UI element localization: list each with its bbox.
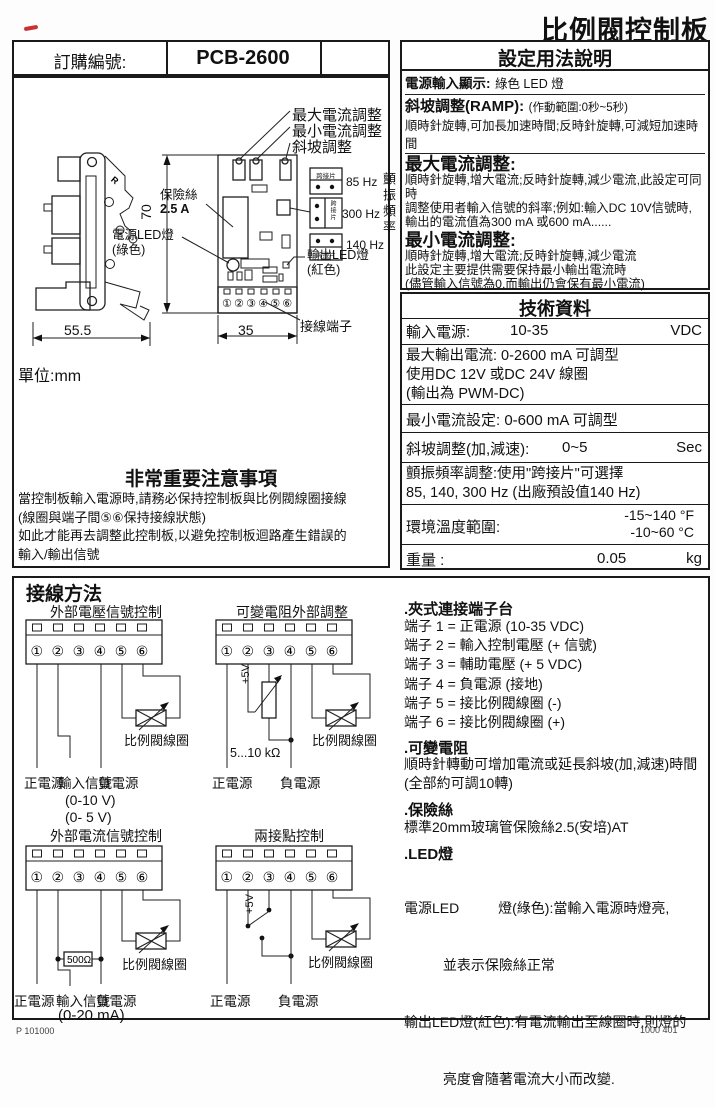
adjust-ramp-label: 斜坡調整 bbox=[292, 136, 352, 157]
power-display-row: 電源輸入顯示: 綠色 LED 燈 bbox=[405, 72, 705, 95]
max-current-title: 最大電流調整: bbox=[405, 154, 705, 174]
tech-title: 技術資料 bbox=[402, 294, 708, 318]
footer-code-right: 1000 401 bbox=[640, 1025, 678, 1035]
dim-55-label: 55.5 bbox=[64, 322, 91, 338]
min-current-line: 此設定主要提供需要保持最小輸出電流時 bbox=[405, 264, 705, 278]
tech-label: 環境溫度範圍: bbox=[406, 516, 500, 537]
dim-35-label: 35 bbox=[238, 322, 254, 338]
coil-label: 比例閥線圈 bbox=[308, 952, 373, 971]
neg-power-label: 負電源 bbox=[98, 772, 139, 792]
tech-line: 使用DC 12V 或DC 24V 線圈 bbox=[406, 366, 704, 385]
wiring-diagram-two-contact: 兩接點控制 ①②③④⑤⑥ +5V 比例閥線圈 正電源 負電源 bbox=[208, 826, 403, 1026]
output-led-color: (紅色) bbox=[307, 263, 369, 278]
power-led-color: (綠色) bbox=[112, 243, 174, 258]
pos-power-label: 正電源 bbox=[212, 772, 253, 792]
freq-85-label: 85 Hz bbox=[346, 175, 377, 189]
tech-unit: Sec bbox=[676, 439, 702, 456]
power-led-text: 電源LED燈 bbox=[112, 228, 174, 243]
terminal-desc: 端子 4 = 負電源 (接地) bbox=[404, 675, 597, 694]
coil-label: 比例閥線圈 bbox=[124, 730, 189, 749]
terminal-desc: 端子 3 = 輔助電壓 (+ 5 VDC) bbox=[404, 655, 597, 674]
pot-value-label: 5...10 kΩ bbox=[230, 746, 280, 760]
resistor-value: 500Ω bbox=[67, 955, 92, 966]
tech-value: 0~5 bbox=[562, 439, 587, 456]
front-terminal-numbers: ①②③④⑤⑥ bbox=[222, 298, 294, 310]
terminal-desc: 端子 6 = 接比例閥線圈 (+) bbox=[404, 713, 597, 732]
max-current-line: 調整使用者輸入信號的斜率;例如:輸入DC 10V信號時, bbox=[405, 202, 705, 216]
terminal-numbers: ①②③④⑤⑥ bbox=[221, 643, 347, 659]
led-info-line: 電源LED 燈(綠色):當輸入電源時燈亮, bbox=[404, 899, 686, 918]
tech-label: 重量 : bbox=[406, 552, 444, 569]
notice-line: 當控制板輸入電源時,請務必保持控制板與比例閥線圈接線 bbox=[18, 490, 384, 509]
tech-value: 0.05 bbox=[597, 550, 626, 567]
terminal-desc: 端子 5 = 接比例閥線圈 (-) bbox=[404, 694, 597, 713]
neg-power-label: 負電源 bbox=[278, 990, 319, 1010]
jumper-diagrams bbox=[310, 168, 342, 260]
tech-label: 斜坡調整(加,減速): bbox=[406, 441, 529, 458]
front-view-drawing: ①②③④⑤⑥ bbox=[162, 111, 310, 344]
dim-70-label: 70 bbox=[138, 204, 154, 220]
notice-title: 非常重要注意事項 bbox=[12, 464, 390, 491]
tech-unit: kg bbox=[686, 550, 702, 567]
tech-line: 顫振頻率調整:使用"跨接片"可選擇 bbox=[406, 465, 704, 484]
tech-data-table: 技術資料 輸入電源: 10-35 VDC 最大輸出電流: 0-2600 mA 可… bbox=[400, 292, 710, 570]
tech-row-dither: 顫振頻率調整:使用"跨接片"可選擇 85, 140, 300 Hz (出廠預設值… bbox=[402, 462, 708, 504]
tech-row-input-power: 輸入電源: 10-35 VDC bbox=[402, 318, 708, 344]
tech-label: 輸入電源: bbox=[406, 324, 470, 341]
tech-row-ramp: 斜坡調整(加,減速): 0~5 Sec bbox=[402, 432, 708, 462]
footer-code-left: P 101000 bbox=[16, 1026, 54, 1036]
led-info-text: 電源LED 燈(綠色):當輸入電源時燈亮, 並表示保險絲正常 輸出LED燈(紅色… bbox=[404, 861, 686, 1108]
max-current-line: 順時針旋轉,增大電流;反時針旋轉,減少電流,此設定可同時 bbox=[405, 174, 705, 202]
range-label: (0-20 mA) bbox=[58, 1007, 125, 1024]
min-current-title: 最小電流調整: bbox=[405, 230, 705, 250]
cell-divider bbox=[320, 42, 322, 74]
terminal-numbers: ①②③④⑤⑥ bbox=[31, 869, 157, 885]
notice-text: 當控制板輸入電源時,請務必保持控制板與比例閥線圈接線 (線圈與端子間⑤⑥保持接線… bbox=[18, 490, 384, 564]
tech-temp-f: -15~140 °F bbox=[624, 507, 694, 524]
pot-info-line: (全部約可調10轉) bbox=[404, 774, 697, 793]
freq-300-label: 300 Hz bbox=[342, 207, 380, 221]
order-number-box: 訂購編號: PCB-2600 bbox=[12, 40, 390, 76]
diagram-title: 兩接點控制 bbox=[254, 826, 324, 846]
tech-row-temp: 環境溫度範圍: -15~140 °F -10~60 °C bbox=[402, 504, 708, 544]
tech-line: 最小電流設定: 0-600 mA 可調型 bbox=[406, 412, 618, 429]
terminal-desc: 端子 1 = 正電源 (10-35 VDC) bbox=[404, 617, 597, 636]
min-current-line: 順時針旋轉,增大電流;反時針旋轉,減少電流 bbox=[405, 250, 705, 264]
led-info-line: 亮度會隨著電流大小而改變. bbox=[404, 1070, 686, 1089]
freq-140-label: 140 Hz bbox=[346, 238, 384, 252]
tech-line: 85, 140, 300 Hz (出廠預設值140 Hz) bbox=[406, 484, 704, 503]
clamp-terminal-title: .夾式連接端子台 bbox=[404, 598, 513, 619]
ramp-line: 順時針旋轉,可加長加速時間;反時針旋轉,可減短加速時間 bbox=[405, 116, 705, 154]
wiring-diagram-voltage: 外部電壓信號控制 ①②③④⑤⑥ 比例閥線圈 正電源 輸入信號 負電源 (0-10… bbox=[18, 600, 213, 812]
ramp-note: (作動範圍:0秒~5秒) bbox=[529, 102, 628, 114]
terminal-strip-label: 接線端子 bbox=[300, 316, 352, 335]
plus5v-label: +5V bbox=[240, 664, 252, 684]
pot-info-text: 順時針轉動可增加電流或延長斜坡(加,減速)時間 (全部約可調10轉) bbox=[404, 755, 697, 793]
coil-label: 比例閥線圈 bbox=[122, 954, 187, 973]
tech-temp-c: -10~60 °C bbox=[624, 524, 694, 541]
terminal-desc: 端子 2 = 輸入控制電壓 (+ 信號) bbox=[404, 636, 597, 655]
notice-line: 輸入/輸出信號 bbox=[18, 546, 384, 565]
diagram-schematic: ①②③④⑤⑥ bbox=[18, 618, 208, 778]
ramp-label: 斜坡調整(RAMP): bbox=[405, 98, 524, 115]
tech-value: 10-35 bbox=[510, 322, 548, 339]
diagram-schematic: ①②③④⑤⑥ bbox=[208, 844, 398, 994]
pot-info-line: 順時針轉動可增加電流或延長斜坡(加,減速)時間 bbox=[404, 755, 697, 774]
tech-unit: VDC bbox=[670, 322, 702, 339]
pos-power-label: 正電源 bbox=[210, 990, 251, 1010]
diagram-title: 外部電流信號控制 bbox=[50, 826, 162, 846]
notice-line: (線圈與端子間⑤⑥保持接線狀態) bbox=[18, 509, 384, 528]
side-r-label: R bbox=[109, 174, 121, 186]
dither-freq-vertical-label: 顫振頻率 bbox=[379, 172, 398, 236]
settings-panel: 設定用法說明 電源輸入顯示: 綠色 LED 燈 斜坡調整(RAMP): (作動範… bbox=[400, 40, 710, 290]
tech-row-min-current: 最小電流設定: 0-600 mA 可調型 bbox=[402, 404, 708, 432]
order-label: 訂購編號: bbox=[14, 48, 166, 73]
ramp-row: 斜坡調整(RAMP): (作動範圍:0秒~5秒) bbox=[405, 95, 705, 116]
unit-label: 單位:mm bbox=[18, 362, 81, 386]
settings-title: 設定用法說明 bbox=[402, 42, 708, 71]
range-label: (0-10 V) bbox=[65, 792, 116, 808]
clamp-terminal-list: 端子 1 = 正電源 (10-35 VDC) 端子 2 = 輸入控制電壓 (+ … bbox=[404, 617, 597, 732]
notice-line: 如此才能再去調整此控制板,以避免控制板迴路產生錯誤的 bbox=[18, 527, 384, 546]
datasheet-page: { "page": { "title": "比例閥控制板", "footer_l… bbox=[0, 0, 715, 1033]
jumper-140-label: 跨接片 bbox=[310, 249, 342, 259]
pos-power-label: 正電源 bbox=[14, 990, 55, 1010]
max-current-line: 輸出的電流值為300 mA 或600 mA...... bbox=[405, 216, 705, 230]
jumper-300-label: 跨接片 bbox=[328, 200, 337, 221]
red-mark bbox=[24, 25, 38, 31]
power-led-label: 電源LED燈 (綠色) bbox=[112, 228, 174, 258]
fuse-rating: 2.5 A bbox=[160, 202, 198, 216]
range-label: (0- 5 V) bbox=[65, 809, 112, 825]
tech-line: 最大輸出電流: 0-2600 mA 可調型 bbox=[406, 347, 704, 366]
fuse-label: 保險絲 2.5 A bbox=[160, 188, 198, 217]
jumper-85-label: 跨接片 bbox=[310, 170, 342, 180]
tech-row-max-output: 最大輸出電流: 0-2600 mA 可調型 使用DC 12V 或DC 24V 線… bbox=[402, 344, 708, 404]
led-info-line: 並表示保險絲正常 bbox=[404, 956, 686, 975]
power-display-label: 電源輸入顯示: bbox=[405, 76, 491, 91]
neg-power-label: 負電源 bbox=[280, 772, 321, 792]
fuse-info-text: 標準20mm玻璃管保險絲2.5(安培)AT bbox=[404, 817, 629, 837]
terminal-numbers: ①②③④⑤⑥ bbox=[221, 869, 347, 885]
plus5v-label: +5V bbox=[244, 894, 256, 914]
tech-row-weight: 重量 : 0.05 kg bbox=[402, 544, 708, 570]
wiring-diagram-potentiometer: 可變電阻外部調整 ①②③④⑤⑥ +5V 5...10 kΩ 比例閥線圈 正電源 … bbox=[208, 600, 403, 812]
tech-line: (輸出為 PWM-DC) bbox=[406, 385, 704, 404]
power-display-value: 綠色 LED 燈 bbox=[495, 77, 564, 91]
fuse-label-text: 保險絲 bbox=[160, 188, 198, 202]
coil-label: 比例閥線圈 bbox=[312, 730, 377, 749]
wiring-diagram-current: 外部電流信號控制 ①②③④⑤⑥ 500Ω 比例閥線圈 正電源 輸入信號 負電源 … bbox=[18, 826, 213, 1026]
terminal-numbers: ①②③④⑤⑥ bbox=[31, 643, 157, 659]
order-value: PCB-2600 bbox=[166, 47, 320, 70]
